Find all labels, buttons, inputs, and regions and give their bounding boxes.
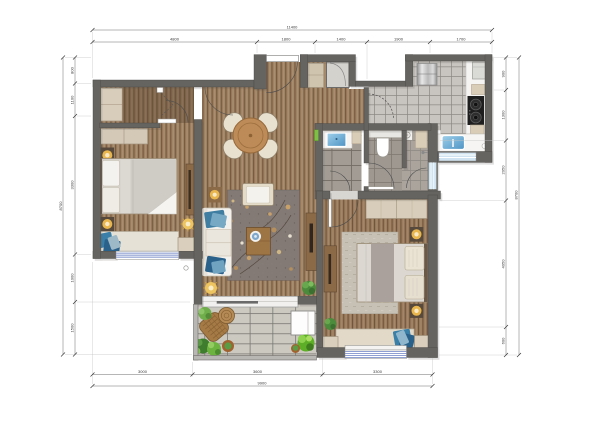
svg-text:8700: 8700 [514,190,519,200]
svg-text:1800: 1800 [282,37,292,42]
svg-text:11400: 11400 [287,25,299,30]
svg-text:3600: 3600 [253,369,263,374]
svg-text:1900: 1900 [394,37,404,42]
svg-text:3300: 3300 [70,180,75,190]
svg-text:4800: 4800 [170,37,180,42]
svg-text:1100: 1100 [70,95,75,104]
svg-text:900: 900 [501,70,506,77]
svg-text:3000: 3000 [138,369,148,374]
svg-text:2050: 2050 [501,165,506,175]
svg-text:600: 600 [501,337,506,344]
svg-text:1700: 1700 [457,37,467,42]
svg-text:8700: 8700 [58,201,63,211]
svg-text:3300: 3300 [373,369,383,374]
svg-text:1400: 1400 [337,37,347,42]
svg-text:1500: 1500 [70,323,75,333]
svg-text:800: 800 [70,66,75,73]
svg-text:1000: 1000 [70,273,75,283]
svg-text:1300: 1300 [501,110,506,120]
svg-text:4050: 4050 [501,259,506,269]
svg-text:9900: 9900 [258,381,268,386]
